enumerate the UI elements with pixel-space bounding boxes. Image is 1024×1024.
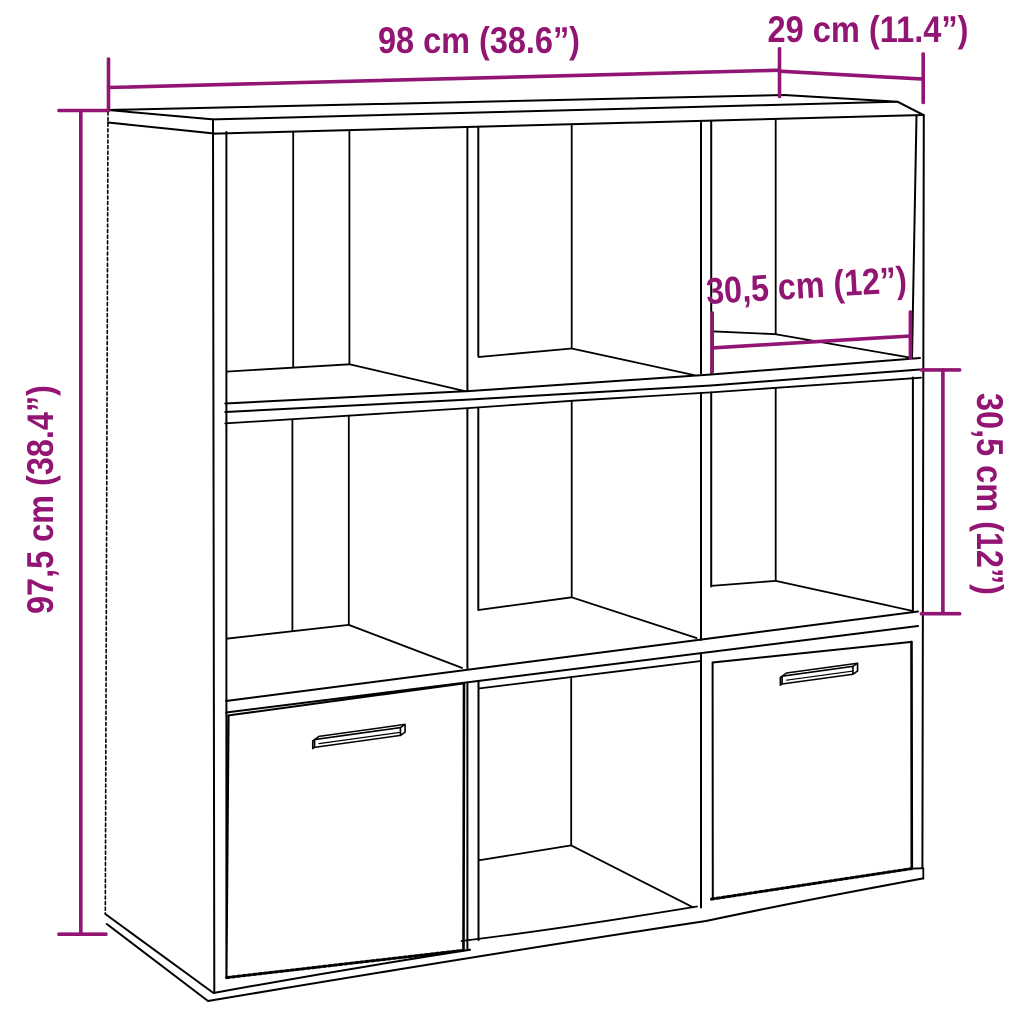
svg-text:30,5 cm (12”): 30,5 cm (12”) (705, 259, 908, 312)
svg-text:30,5 cm (12”): 30,5 cm (12”) (969, 393, 1010, 595)
svg-text:98 cm (38.6”): 98 cm (38.6”) (378, 20, 580, 61)
svg-text:29 cm (11.4”): 29 cm (11.4”) (768, 9, 969, 50)
svg-text:97,5 cm (38.4”): 97,5 cm (38.4”) (20, 385, 61, 614)
